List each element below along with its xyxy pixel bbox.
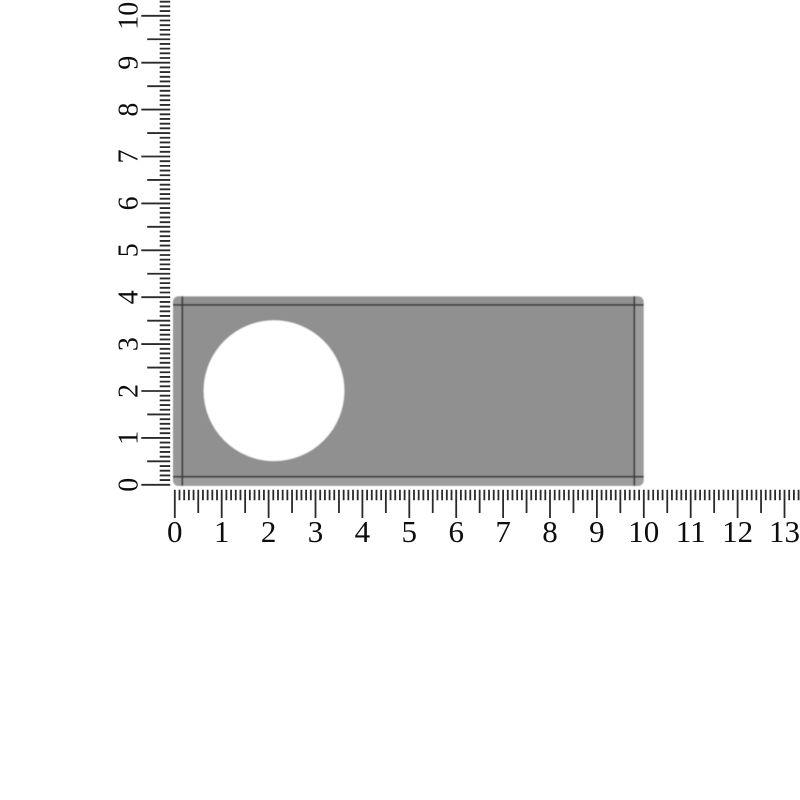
svg-text:7: 7 (495, 514, 511, 549)
svg-text:11: 11 (676, 514, 706, 549)
svg-text:8: 8 (542, 514, 558, 549)
svg-text:0: 0 (167, 514, 183, 549)
svg-text:10: 10 (114, 2, 145, 30)
svg-text:1: 1 (214, 514, 230, 549)
svg-text:6: 6 (448, 514, 464, 549)
svg-text:2: 2 (261, 514, 277, 549)
svg-text:5: 5 (402, 514, 418, 549)
svg-text:13: 13 (769, 514, 800, 549)
svg-text:4: 4 (355, 514, 371, 549)
svg-text:7: 7 (114, 150, 145, 164)
svg-text:12: 12 (722, 514, 753, 549)
svg-text:6: 6 (114, 196, 145, 210)
svg-text:3: 3 (114, 337, 145, 351)
svg-text:0: 0 (114, 478, 145, 492)
svg-text:10: 10 (628, 514, 659, 549)
svg-text:1: 1 (114, 431, 145, 445)
svg-text:9: 9 (114, 56, 145, 70)
svg-text:3: 3 (308, 514, 324, 549)
svg-text:5: 5 (114, 243, 145, 257)
svg-text:4: 4 (114, 290, 145, 304)
svg-text:9: 9 (589, 514, 605, 549)
svg-text:8: 8 (114, 103, 145, 117)
svg-text:2: 2 (114, 384, 145, 398)
